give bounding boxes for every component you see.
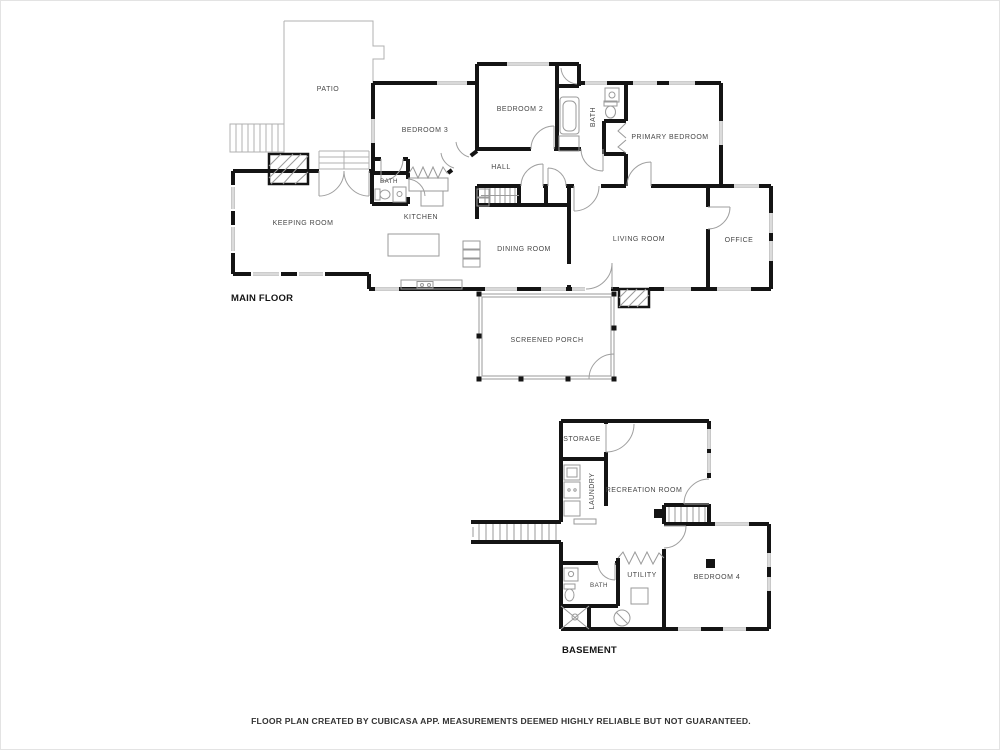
basement-plan (471, 421, 770, 630)
patio-stairs (230, 124, 284, 152)
basement-door-arcs (598, 424, 709, 580)
label-bath-hall: BATH (590, 107, 597, 127)
basement-windows (678, 429, 770, 630)
patio-stairs-treads (236, 124, 278, 152)
main-bath-fixtures (375, 187, 406, 202)
label-bedroom4: BEDROOM 4 (694, 574, 741, 581)
label-storage: STORAGE (563, 436, 601, 443)
label-primary-bedroom: PRIMARY BEDROOM (631, 134, 708, 141)
label-bath-main: BATH (380, 178, 398, 185)
plan-caption: FLOOR PLAN CREATED BY CUBICASA APP. MEAS… (251, 716, 751, 726)
floor-plan-page: PATIO BEDROOM 3 BEDROOM 2 BATH PRIMARY B… (0, 0, 1000, 750)
basement-bath-fixtures (561, 568, 589, 629)
label-screened-porch: SCREENED PORCH (510, 337, 583, 344)
hall-stairs (481, 188, 519, 203)
label-hall: HALL (491, 164, 511, 171)
label-office: OFFICE (725, 237, 754, 244)
main-floor-door-arcs (319, 68, 730, 379)
label-bedroom2: BEDROOM 2 (497, 106, 544, 113)
basement-title: BASEMENT (562, 645, 617, 656)
main-floor-windows (232, 63, 772, 290)
main-floor-plan (230, 21, 772, 382)
patio-outline (284, 21, 384, 124)
label-recreation-room: RECREATION ROOM (606, 487, 683, 494)
label-laundry: LAUNDRY (589, 473, 596, 510)
label-keeping-room: KEEPING ROOM (273, 220, 334, 227)
label-bedroom3: BEDROOM 3 (402, 127, 449, 134)
main-floor-title: MAIN FLOOR (231, 293, 293, 304)
kitchen-halfwall (409, 167, 448, 178)
diagonal-door-gap (452, 156, 471, 170)
living-room-chimney (619, 289, 649, 307)
label-bath-basement: BATH (590, 582, 608, 589)
basement-interior-stairs (654, 507, 705, 522)
label-kitchen: KITCHEN (404, 214, 438, 221)
label-patio: PATIO (317, 86, 340, 93)
utility-halfwall (618, 552, 664, 564)
basement-entry-stairs (473, 524, 556, 540)
patio-steps (319, 151, 369, 169)
floor-plan-canvas: PATIO BEDROOM 3 BEDROOM 2 BATH PRIMARY B… (1, 1, 1000, 750)
label-dining-room: DINING ROOM (497, 246, 551, 253)
bedroom4-post (706, 559, 715, 568)
main-floor-walls (233, 64, 771, 289)
label-utility: UTILITY (627, 572, 657, 579)
label-living-room: LIVING ROOM (613, 236, 665, 243)
